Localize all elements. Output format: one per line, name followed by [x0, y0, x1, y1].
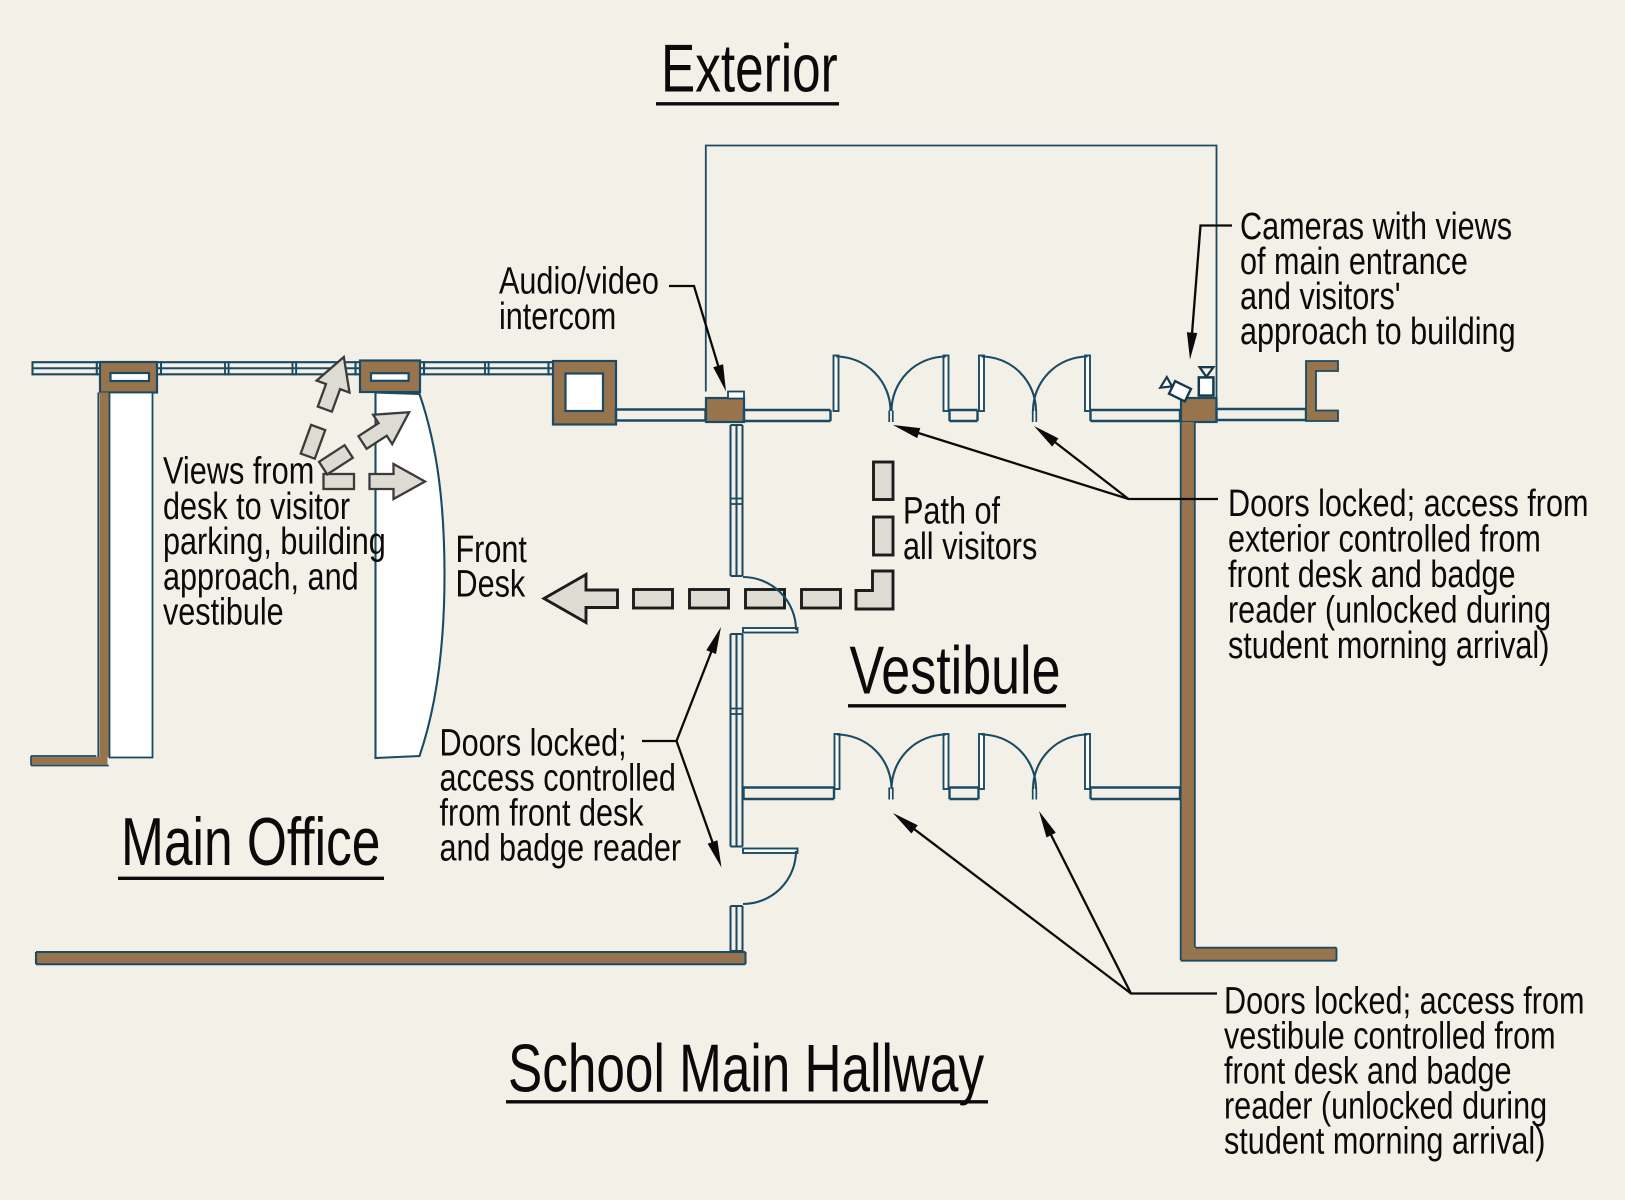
svg-text:student morning arrival): student morning arrival) [1224, 1121, 1545, 1163]
svg-text:student morning arrival): student morning arrival) [1228, 625, 1549, 667]
svg-text:Desk: Desk [456, 564, 527, 606]
svg-text:intercom: intercom [499, 296, 616, 338]
svg-text:vestibule: vestibule [163, 592, 284, 634]
svg-text:Exterior: Exterior [661, 32, 838, 107]
svg-text:and badge reader: and badge reader [440, 828, 682, 870]
svg-text:approach to building: approach to building [1240, 311, 1516, 353]
svg-text:School Main Hallway: School Main Hallway [508, 1031, 984, 1106]
svg-text:Main Office: Main Office [121, 805, 380, 880]
svg-text:all visitors: all visitors [903, 526, 1037, 568]
svg-text:Vestibule: Vestibule [850, 634, 1061, 709]
